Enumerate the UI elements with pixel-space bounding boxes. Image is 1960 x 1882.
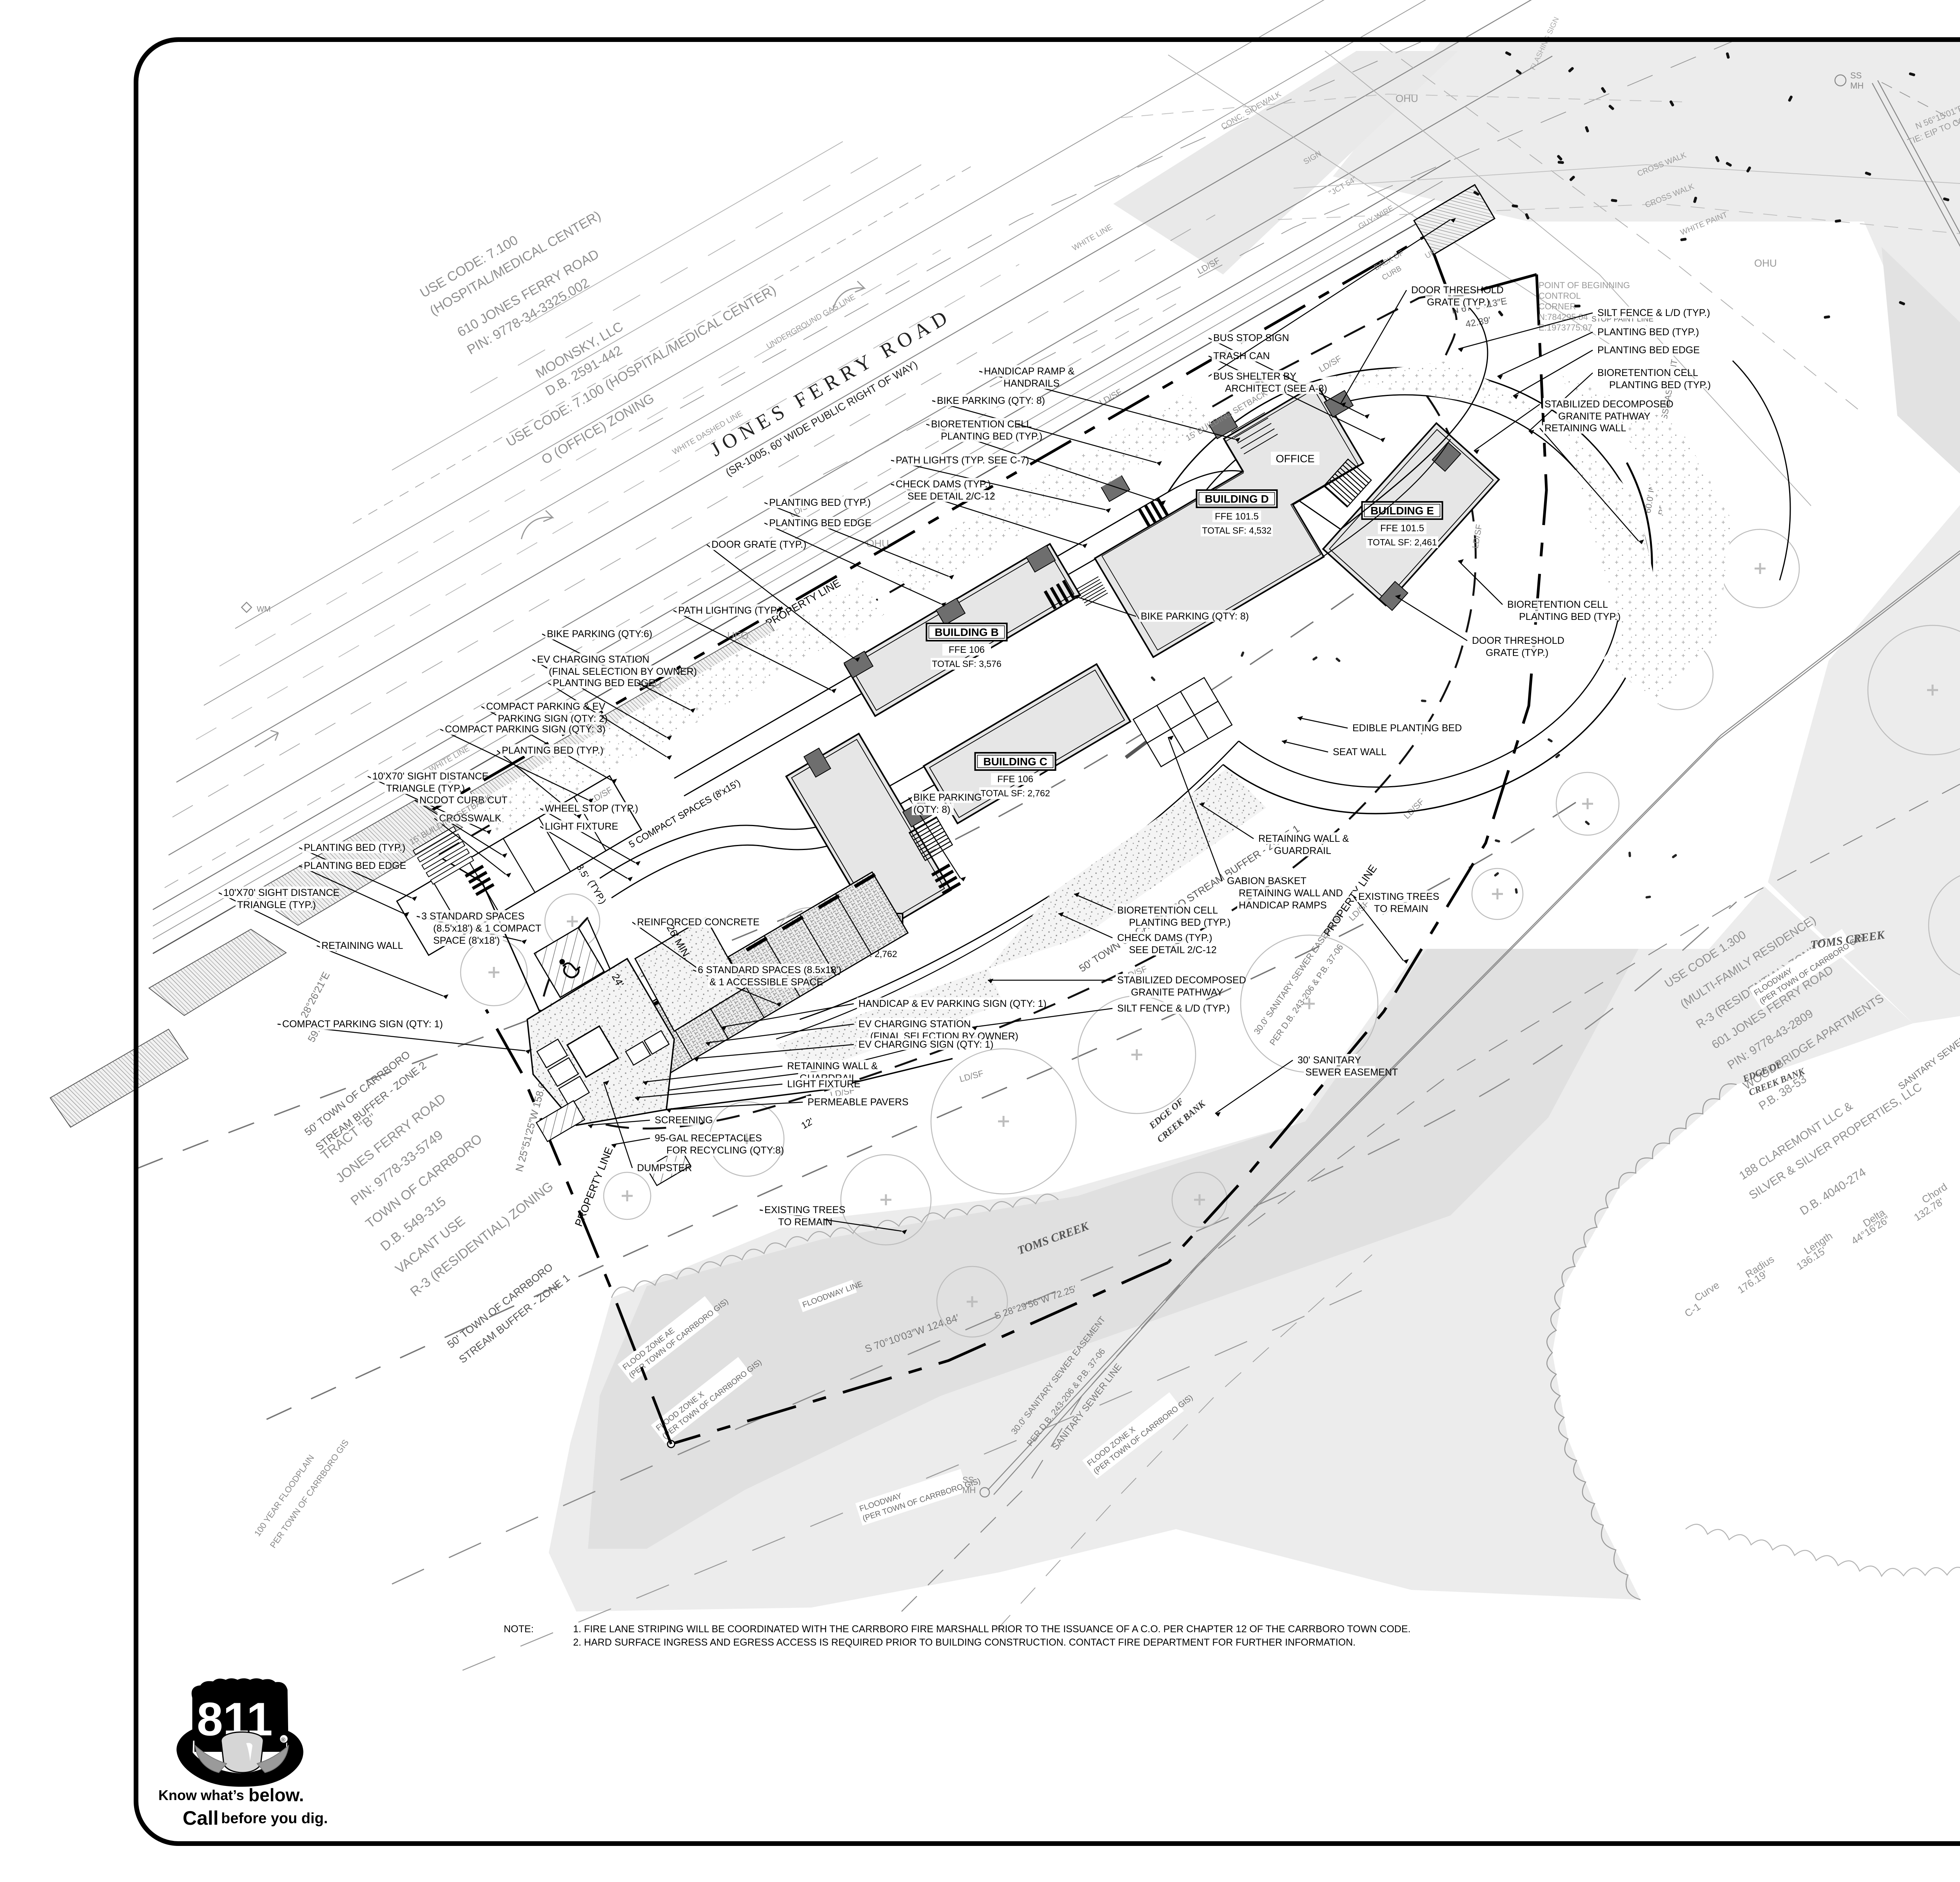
svg-text:SEWER EASEMENT: SEWER EASEMENT <box>1305 1067 1398 1078</box>
svg-text:CHECK DAMS (TYP.): CHECK DAMS (TYP.) <box>896 479 991 490</box>
svg-text:PLANTING BED (TYP.): PLANTING BED (TYP.) <box>502 745 603 756</box>
svg-text:POINT OF BEGINNING: POINT OF BEGINNING <box>1539 280 1630 290</box>
svg-text:BIKE PARKING: BIKE PARKING <box>913 792 982 803</box>
svg-text:HANDICAP RAMPS: HANDICAP RAMPS <box>1239 900 1327 911</box>
svg-text:BIORETENTION CELL: BIORETENTION CELL <box>1507 599 1608 610</box>
svg-text:2. HARD SURFACE INGRESS AND EG: 2. HARD SURFACE INGRESS AND EGRESS ACCES… <box>573 1637 1356 1648</box>
svg-text:HANDRAILS: HANDRAILS <box>1004 378 1060 389</box>
svg-text:SCREENING: SCREENING <box>655 1115 713 1126</box>
svg-text:BUILDING E: BUILDING E <box>1370 505 1434 517</box>
svg-text:PLANTING BED (TYP.): PLANTING BED (TYP.) <box>769 497 871 508</box>
svg-text:EXISTING TREES: EXISTING TREES <box>1358 891 1439 902</box>
svg-text:OHU: OHU <box>1396 93 1418 104</box>
svg-text:PLANTING BED EDGE: PLANTING BED EDGE <box>304 860 406 871</box>
svg-text:PLANTING BED (TYP.): PLANTING BED (TYP.) <box>1597 327 1699 338</box>
svg-text:HANDICAP RAMP &: HANDICAP RAMP & <box>984 366 1074 377</box>
svg-text:TOTAL SF: 2,461: TOTAL SF: 2,461 <box>1367 537 1437 547</box>
svg-text:PATH LIGHTS (TYP. SEE C-7): PATH LIGHTS (TYP. SEE C-7) <box>896 455 1029 466</box>
svg-text:FOR RECYCLING (QTY:8): FOR RECYCLING (QTY:8) <box>666 1145 784 1156</box>
svg-text:below.: below. <box>249 1785 304 1805</box>
svg-text:BIKE PARKING (QTY: 8): BIKE PARKING (QTY: 8) <box>937 395 1045 406</box>
svg-text:BUILDING D: BUILDING D <box>1205 493 1269 505</box>
svg-text:DOOR THRESHOLD: DOOR THRESHOLD <box>1411 285 1504 296</box>
svg-text:RETAINING WALL &: RETAINING WALL & <box>1258 833 1349 844</box>
svg-text:TO REMAIN: TO REMAIN <box>1374 903 1428 914</box>
svg-text:RETAINING WALL: RETAINING WALL <box>1544 423 1626 434</box>
svg-text:EV CHARGING STATION: EV CHARGING STATION <box>858 1019 971 1030</box>
svg-text:RETAINING WALL &: RETAINING WALL & <box>787 1061 878 1072</box>
svg-text:HANDICAP & EV PARKING SIGN (QT: HANDICAP & EV PARKING SIGN (QTY: 1) <box>858 998 1047 1009</box>
svg-text:MH: MH <box>962 1485 976 1495</box>
svg-text:10'X70' SIGHT DISTANCE: 10'X70' SIGHT DISTANCE <box>372 771 488 782</box>
svg-text:DUMPSTER: DUMPSTER <box>637 1163 692 1174</box>
svg-text:SILT FENCE & L/D (TYP.): SILT FENCE & L/D (TYP.) <box>1117 1003 1230 1014</box>
svg-text:SEAT WALL: SEAT WALL <box>1333 747 1387 758</box>
svg-text:CORNER: CORNER <box>1539 302 1576 311</box>
svg-text:GRANITE PATHWAY: GRANITE PATHWAY <box>1558 411 1651 422</box>
svg-text:before you dig.: before you dig. <box>221 1810 328 1827</box>
svg-text:COMPACT PARKING SIGN (QTY: 1): COMPACT PARKING SIGN (QTY: 1) <box>282 1019 443 1030</box>
svg-text:BIKE PARKING (QTY: 8): BIKE PARKING (QTY: 8) <box>1141 611 1249 622</box>
svg-text:PLANTING BED (TYP.): PLANTING BED (TYP.) <box>1519 611 1621 622</box>
svg-text:SPACE (8'x18'): SPACE (8'x18') <box>433 935 500 946</box>
svg-text:BIORETENTION CELL: BIORETENTION CELL <box>1117 905 1218 916</box>
svg-text:BIORETENTION CELL: BIORETENTION CELL <box>1597 367 1698 378</box>
svg-text:STABILIZED DECOMPOSED: STABILIZED DECOMPOSED <box>1117 975 1246 986</box>
svg-text:TOTAL SF: 2,762: TOTAL SF: 2,762 <box>980 788 1050 798</box>
svg-text:OHU: OHU <box>1754 257 1777 269</box>
svg-text:10'X70' SIGHT DISTANCE: 10'X70' SIGHT DISTANCE <box>223 887 339 898</box>
svg-text:1. FIRE LANE STRIPING WILL BE: 1. FIRE LANE STRIPING WILL BE COORDINATE… <box>573 1624 1410 1635</box>
svg-text:FFE 101.5: FFE 101.5 <box>1380 523 1424 534</box>
svg-text:TO REMAIN: TO REMAIN <box>778 1217 832 1228</box>
svg-text:PLANTING BED (TYP.): PLANTING BED (TYP.) <box>1129 917 1230 928</box>
svg-text:Call: Call <box>183 1807 219 1829</box>
svg-text:FFE 106: FFE 106 <box>997 774 1033 785</box>
svg-text:BIORETENTION CELL: BIORETENTION CELL <box>931 419 1032 430</box>
svg-text:WHEEL STOP (TYP.): WHEEL STOP (TYP.) <box>545 803 638 814</box>
svg-text:BUILDING C: BUILDING C <box>983 756 1047 768</box>
svg-text:3 STANDARD SPACES: 3 STANDARD SPACES <box>421 911 524 922</box>
svg-text:PLANTING BED EDGE: PLANTING BED EDGE <box>1597 345 1700 356</box>
svg-text:EV CHARGING SIGN (QTY: 1): EV CHARGING SIGN (QTY: 1) <box>858 1039 994 1050</box>
svg-text:Know what’s: Know what’s <box>158 1787 244 1803</box>
svg-text:SEE DETAIL 2/C-12: SEE DETAIL 2/C-12 <box>907 491 995 502</box>
svg-text:DOOR GRATE (TYP.): DOOR GRATE (TYP.) <box>711 539 806 550</box>
svg-text:PLANTING BED EDGE: PLANTING BED EDGE <box>769 518 871 529</box>
svg-text:REINFORCED CONCRETE: REINFORCED CONCRETE <box>637 917 760 928</box>
svg-text:NOTE:: NOTE: <box>504 1624 534 1635</box>
svg-text:TRASH CAN: TRASH CAN <box>1213 351 1270 362</box>
svg-text:SILT FENCE & L/D (TYP.): SILT FENCE & L/D (TYP.) <box>1597 307 1710 318</box>
svg-text:TRIANGLE (TYP.): TRIANGLE (TYP.) <box>237 899 316 910</box>
svg-text:EV CHARGING STATION: EV CHARGING STATION <box>537 654 650 665</box>
svg-text:EDIBLE PLANTING BED: EDIBLE PLANTING BED <box>1352 723 1462 734</box>
svg-text:EXISTING TREES: EXISTING TREES <box>764 1204 846 1215</box>
svg-text:PLANTING BED EDGE: PLANTING BED EDGE <box>553 678 655 688</box>
svg-text:ARCHITECT (SEE A-3): ARCHITECT (SEE A-3) <box>1225 383 1327 394</box>
svg-text:SEE DETAIL 2/C-12: SEE DETAIL 2/C-12 <box>1129 945 1217 956</box>
svg-text:GRANITE PATHWAY: GRANITE PATHWAY <box>1131 987 1223 998</box>
svg-text:PLANTING BED (TYP.): PLANTING BED (TYP.) <box>1609 380 1711 391</box>
svg-text:WM: WM <box>257 605 271 614</box>
svg-text:BUS STOP SIGN: BUS STOP SIGN <box>1213 332 1289 343</box>
svg-text:BUS SHELTER BY: BUS SHELTER BY <box>1213 371 1296 382</box>
svg-text:(FINAL SELECTION BY OWNER): (FINAL SELECTION BY OWNER) <box>549 666 697 677</box>
svg-text:GRATE (TYP.): GRATE (TYP.) <box>1486 647 1548 658</box>
svg-text:TRIANGLE (TYP.): TRIANGLE (TYP.) <box>386 783 465 794</box>
svg-text:PERMEABLE PAVERS: PERMEABLE PAVERS <box>808 1097 909 1108</box>
svg-text:LIGHT FIXTURE: LIGHT FIXTURE <box>545 821 618 832</box>
svg-text:FFE 106: FFE 106 <box>949 645 985 655</box>
svg-text:95-GAL RECEPTACLES: 95-GAL RECEPTACLES <box>655 1133 762 1144</box>
svg-text:RETAINING WALL AND: RETAINING WALL AND <box>1239 888 1343 899</box>
svg-text:COMPACT PARKING & EV: COMPACT PARKING & EV <box>486 701 606 712</box>
svg-text:RETAINING WALL: RETAINING WALL <box>321 940 403 951</box>
svg-text:LIGHT FIXTURE: LIGHT FIXTURE <box>787 1079 860 1090</box>
svg-text:SS: SS <box>962 1475 974 1485</box>
svg-text:(QTY: 8): (QTY: 8) <box>913 804 950 815</box>
svg-text:GUARDRAIL: GUARDRAIL <box>1274 845 1331 856</box>
svg-text:GRATE (TYP.): GRATE (TYP.) <box>1427 297 1490 308</box>
svg-text:CHECK DAMS (TYP.): CHECK DAMS (TYP.) <box>1117 932 1212 943</box>
svg-text:BIKE PARKING (QTY:6): BIKE PARKING (QTY:6) <box>547 629 652 639</box>
svg-text:®: ® <box>281 1737 285 1743</box>
svg-text:CONTROL: CONTROL <box>1539 291 1581 301</box>
svg-text:PATH LIGHTING (TYP.): PATH LIGHTING (TYP.) <box>678 605 782 616</box>
svg-text:6 STANDARD SPACES (8.5x18'): 6 STANDARD SPACES (8.5x18') <box>698 965 841 976</box>
svg-text:FFE 101.5: FFE 101.5 <box>1215 511 1259 522</box>
svg-text:MH: MH <box>1850 81 1864 91</box>
svg-text:NCDOT CURB CUT: NCDOT CURB CUT <box>419 795 508 806</box>
svg-text:DOOR THRESHOLD: DOOR THRESHOLD <box>1472 635 1564 646</box>
svg-text:GABION BASKET: GABION BASKET <box>1227 876 1307 887</box>
svg-text:SS: SS <box>1850 71 1862 80</box>
svg-text:COMPACT PARKING SIGN (QTY: 3): COMPACT PARKING SIGN (QTY: 3) <box>445 724 606 735</box>
svg-text:PLANTING BED (TYP.): PLANTING BED (TYP.) <box>941 431 1042 442</box>
svg-text:BUILDING B: BUILDING B <box>935 626 998 638</box>
svg-text:TOTAL SF: 4,532: TOTAL SF: 4,532 <box>1202 525 1271 536</box>
svg-text:30' SANITARY: 30' SANITARY <box>1298 1055 1361 1066</box>
svg-text:PARKING SIGN (QTY: 2): PARKING SIGN (QTY: 2) <box>498 713 608 724</box>
svg-text:PLANTING BED (TYP.): PLANTING BED (TYP.) <box>304 842 405 853</box>
svg-text:OFFICE: OFFICE <box>1276 453 1315 465</box>
svg-text:TOTAL SF: 3,576: TOTAL SF: 3,576 <box>932 659 1001 669</box>
svg-text:E:1973775.07: E:1973775.07 <box>1539 323 1592 332</box>
svg-text:STABILIZED DECOMPOSED: STABILIZED DECOMPOSED <box>1544 399 1673 410</box>
svg-text:& 1 ACCESSIBLE SPACE: & 1 ACCESSIBLE SPACE <box>710 977 823 988</box>
svg-text:(8.5'x18') & 1 COMPACT: (8.5'x18') & 1 COMPACT <box>433 923 541 934</box>
